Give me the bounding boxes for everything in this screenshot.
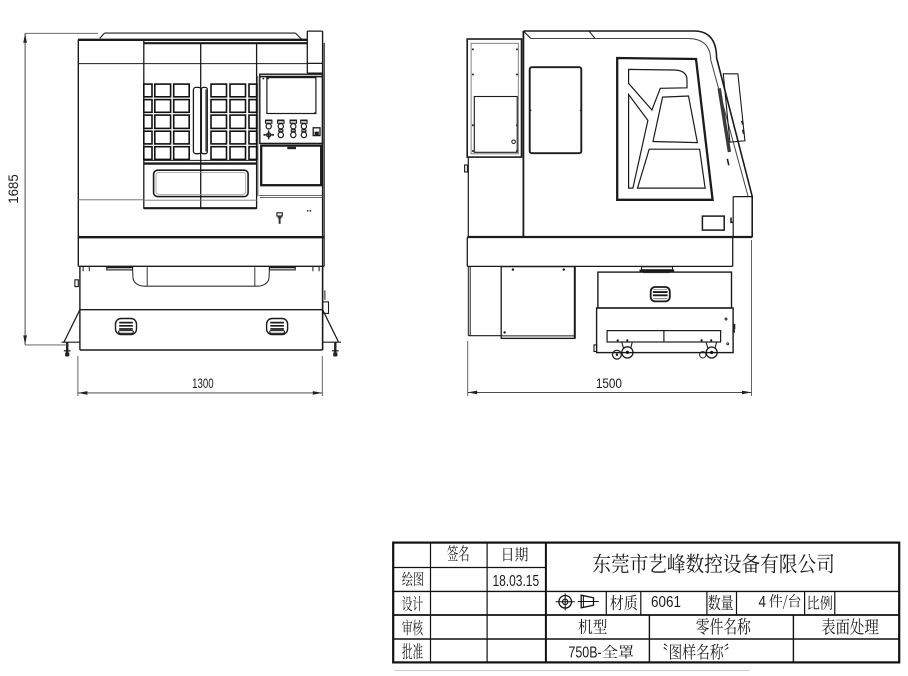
svg-text:750B-: 750B- [568, 644, 601, 662]
svg-text:1685: 1685 [6, 174, 21, 203]
svg-text:4: 4 [759, 594, 766, 611]
svg-text:18.03.15: 18.03.15 [492, 571, 539, 589]
svg-text:1300: 1300 [192, 375, 214, 391]
svg-text:6061: 6061 [651, 594, 681, 611]
svg-text:1500: 1500 [596, 375, 622, 391]
